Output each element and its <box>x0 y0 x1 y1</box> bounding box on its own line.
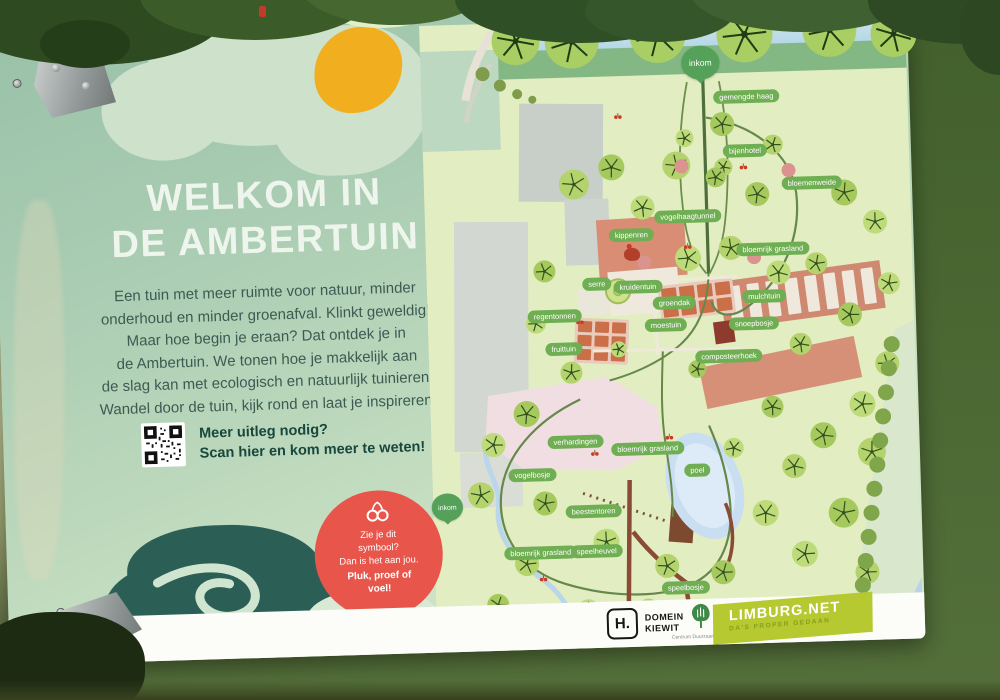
pluk-symbol <box>580 320 584 324</box>
sign-board: WELKOM IN DE AMBERTUIN Een tuin met meer… <box>0 0 925 665</box>
map-label: bloemrijk grasland <box>504 545 577 560</box>
welcome-title: WELKOM IN DE AMBERTUIN <box>53 167 475 269</box>
birdhouse-icon <box>259 6 266 17</box>
map-label: groendak <box>653 296 697 310</box>
badge-line: Dan is het aan jou. <box>315 553 443 570</box>
entrance-pin: inkom <box>681 45 720 80</box>
badge-line-bold: voel! <box>316 581 444 598</box>
map-label: poel <box>684 463 711 476</box>
map-label: speelbosje <box>662 580 710 594</box>
map-label: bloemrijk grasland <box>736 241 809 256</box>
cherries-icon <box>362 500 393 523</box>
map-label: kruidentuin <box>613 280 662 294</box>
foliage <box>960 0 1000 75</box>
map-label: bloemenweide <box>782 175 843 189</box>
domein-kiewit-logo: H. <box>606 608 638 640</box>
pluk-symbol <box>740 166 744 170</box>
shrub-icon <box>528 96 536 104</box>
entrance-pin: inkom <box>431 493 463 522</box>
pluk-symbol <box>744 166 748 170</box>
qr-code <box>141 422 186 467</box>
pluk-symbol <box>618 115 622 119</box>
berry-bush-icon <box>781 163 795 177</box>
badge-text: Zie je ditsymbool?Dan is het aan jou. <box>314 528 443 570</box>
map-label: composteerhoek <box>695 349 763 363</box>
pluk-symbol <box>666 436 670 440</box>
wooden-post-weathering <box>14 200 64 580</box>
map-label: serre <box>582 277 611 290</box>
limburg-net-logo: LIMBURG.NET DA'S PROPER GEDAAN <box>713 592 873 645</box>
tree-icon <box>687 603 714 630</box>
map-label: vogelbosje <box>508 468 556 482</box>
map-label: beestentoren <box>565 504 621 518</box>
map-label: fruittuin <box>545 342 582 356</box>
qr-caption: Meer uitleg nodig? Scan hier en kom meer… <box>199 417 426 464</box>
map-label: bloemrijk grasland <box>611 441 684 456</box>
intro-text: Een tuin met meer ruimte voor natuur, mi… <box>67 276 467 423</box>
shrub-icon <box>512 89 522 99</box>
pluk-symbol <box>614 115 618 119</box>
map-label: moestuin <box>645 318 688 332</box>
map-label: mulchtuin <box>742 289 786 303</box>
garden-map: gemengde haagbijenhotelbloemenweidebloem… <box>419 12 923 626</box>
map-label: bijenhotel <box>723 144 767 158</box>
map-label: vogelhaagtunnel <box>654 209 721 223</box>
photograph-of-sign: WELKOM IN DE AMBERTUIN Een tuin met meer… <box>0 0 1000 700</box>
map-label: speelheuvel <box>571 544 623 558</box>
qr-block: Meer uitleg nodig? Scan hier en kom meer… <box>141 415 426 467</box>
badge-text-bold: Pluk, proef ofvoel! <box>315 568 444 598</box>
map-label: kippenren <box>609 228 654 242</box>
bolt-icon <box>82 82 90 90</box>
cloud-shape <box>100 59 228 163</box>
chicken-icon <box>624 248 640 261</box>
ground-shadow <box>0 680 1000 700</box>
map-label: gemengde haag <box>713 89 780 103</box>
shrub-icon <box>494 79 506 91</box>
pluk-symbol <box>670 436 674 440</box>
bolt-icon <box>52 64 60 72</box>
map-label: regentonnen <box>528 309 582 323</box>
map-label: snoepbosje <box>729 316 780 330</box>
map-label: verhardingen <box>547 434 603 448</box>
